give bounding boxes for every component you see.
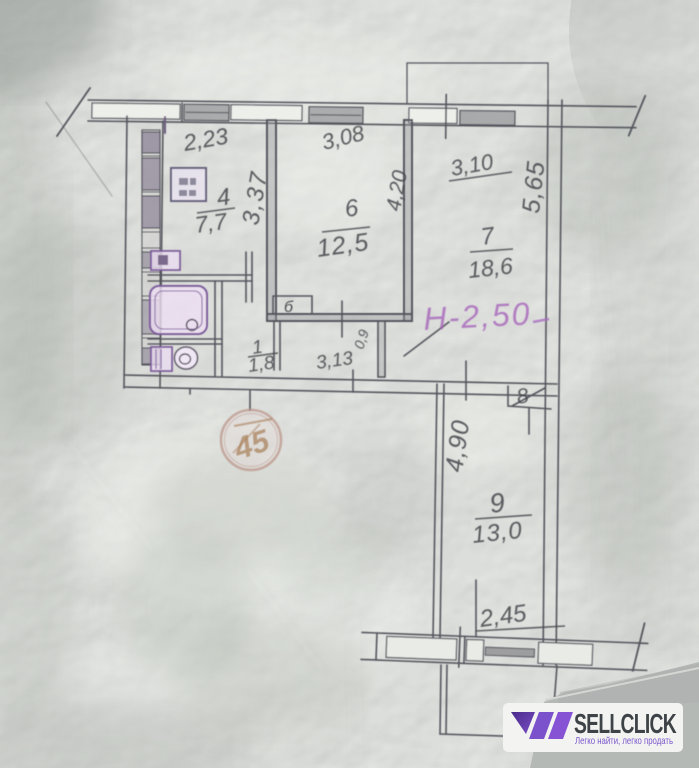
svg-text:13,0: 13,0 [471,517,524,549]
svg-text:Легко найти, легко продать: Легко найти, легко продать [575,735,673,747]
svg-text:Н-2,50: Н-2,50 [422,295,532,337]
svg-text:б: б [284,299,294,316]
svg-text:18,6: 18,6 [467,252,514,283]
svg-text:5,65: 5,65 [517,159,550,214]
